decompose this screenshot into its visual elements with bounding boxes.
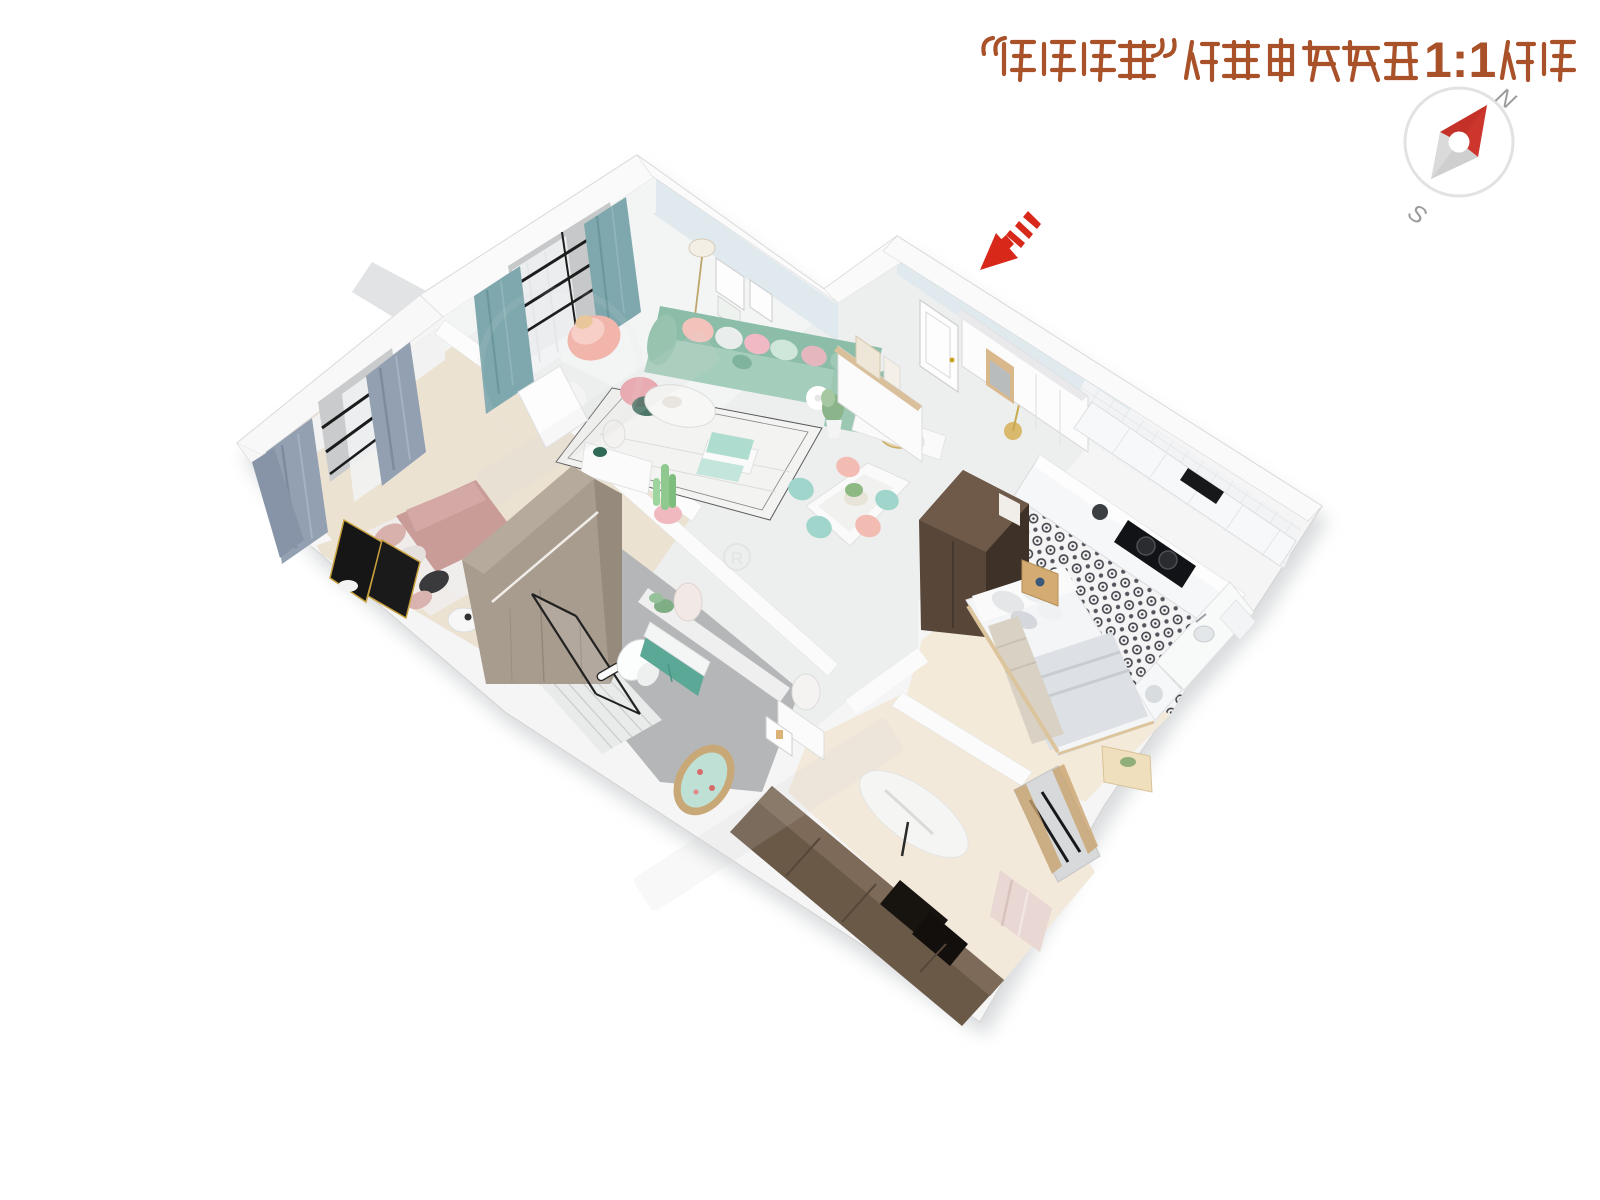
svg-text:R: R	[731, 549, 743, 568]
svg-text:1:1: 1:1	[1424, 32, 1496, 88]
